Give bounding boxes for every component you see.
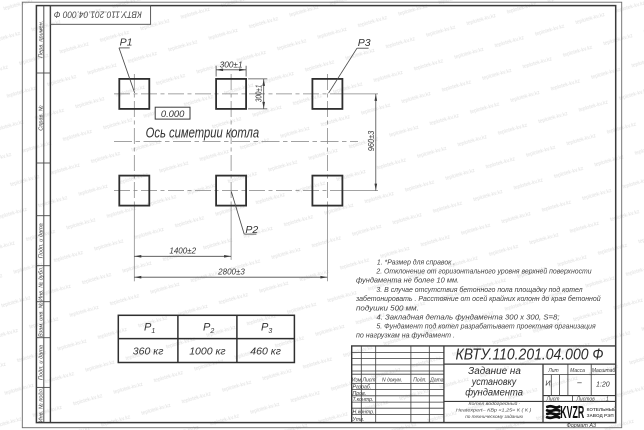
svg-text:Ось симетрии котла: Ось симетрии котла — [146, 125, 260, 142]
svg-text:Подп. и дата: Подп. и дата — [39, 223, 45, 258]
svg-text:1. *Размер для справок .: 1. *Размер для справок . — [377, 258, 455, 267]
svg-text:по техническому заданию: по техническому заданию — [465, 414, 523, 420]
svg-text:фундамента: фундамента — [465, 387, 523, 399]
svg-text:Heatexpert– КВр «1,25» К ( К ): Heatexpert– КВр «1,25» К ( К ) — [456, 408, 532, 414]
svg-text:Изм.Лист: Изм.Лист — [352, 377, 376, 383]
svg-text:2. Отклонение от горизонтальн: 2. Отклонение от горизонтального уровня … — [375, 267, 591, 276]
svg-text:фундамента не более 10 мм.: фундамента не более 10 мм. — [356, 276, 459, 285]
svg-text:забетонировать . Расстояние от: забетонировать . Расстояние от осей край… — [355, 294, 601, 303]
svg-text:Пров.: Пров. — [353, 391, 367, 397]
svg-text:ЗАВОД РЭП: ЗАВОД РЭП — [587, 413, 614, 418]
svg-text:Т.контр.: Т.контр. — [353, 397, 374, 403]
svg-text:KVZR: KVZR — [560, 402, 584, 422]
svg-text:1:20: 1:20 — [596, 381, 610, 388]
svg-text:Взам. инв. №: Взам. инв. № — [39, 302, 45, 337]
svg-text:Лит: Лит — [547, 368, 558, 374]
svg-text:Справ. №: Справ. № — [39, 105, 45, 130]
svg-text:Перв. примен.: Перв. примен. — [39, 21, 45, 58]
svg-text:Утв.: Утв. — [353, 417, 365, 423]
svg-text:1000 кг: 1000 кг — [189, 345, 225, 357]
svg-text:460 кг: 460 кг — [250, 345, 281, 357]
svg-text:960±3: 960±3 — [367, 130, 376, 151]
svg-text:Разраб.: Разраб. — [353, 385, 372, 391]
svg-text:Масса: Масса — [570, 368, 585, 374]
svg-text:КВТУ.110.201.04.000 Ф: КВТУ.110.201.04.000 Ф — [456, 347, 604, 364]
svg-text:360 кг: 360 кг — [133, 345, 164, 357]
svg-text:по нагрузкам на фундамент .: по нагрузкам на фундамент . — [356, 331, 455, 340]
svg-text:1: 1 — [606, 396, 609, 402]
svg-text:установку: установку — [471, 377, 517, 388]
svg-text:Инв. № дубл.: Инв. № дубл. — [39, 266, 45, 300]
svg-text:Задание на: Задание на — [468, 366, 521, 377]
svg-text:Подп.: Подп. — [413, 377, 426, 383]
svg-text:И: И — [545, 378, 551, 387]
svg-text:Котел водогрейный ·: Котел водогрейный · — [469, 400, 521, 407]
svg-text:2800±3: 2800±3 — [217, 267, 245, 276]
svg-text:Лист: Лист — [546, 396, 560, 402]
svg-text:3. В случае отсутствия бетонн: 3. В случае отсутствия бетонного пола пл… — [376, 285, 582, 294]
svg-text:P2: P2 — [245, 224, 258, 236]
svg-text:Масштаб: Масштаб — [592, 368, 616, 374]
svg-text:0.000: 0.000 — [161, 108, 185, 119]
svg-text:подушки 500 мм.: подушки 500 мм. — [356, 303, 419, 312]
svg-text:300±1: 300±1 — [255, 85, 264, 103]
svg-text:5. Фундамент под котел разраб: 5. Фундамент под котел разрабатывает про… — [376, 322, 595, 331]
svg-text:N докум.: N докум. — [382, 377, 402, 383]
svg-text:Подп. и дата: Подп. и дата — [39, 345, 45, 380]
svg-text:300±1: 300±1 — [220, 61, 243, 70]
svg-text:Инв. № подл.: Инв. № подл. — [39, 388, 45, 423]
svg-text:4. Закладная деталь фундамент: 4. Закладная деталь фундамента 300 x 300… — [376, 313, 559, 322]
svg-text:–: – — [576, 378, 582, 387]
svg-text:1400±2: 1400±2 — [169, 247, 196, 256]
svg-text:Формат А3: Формат А3 — [567, 423, 597, 429]
svg-text:Дата: Дата — [429, 377, 443, 383]
svg-text:P3: P3 — [358, 37, 371, 49]
svg-text:КОТЕЛЬНЫЙ: КОТЕЛЬНЫЙ — [587, 405, 617, 412]
svg-text:КВТУ.110.201.04.000 Ф: КВТУ.110.201.04.000 Ф — [54, 10, 142, 20]
svg-text:P1: P1 — [120, 37, 133, 49]
svg-text:Н.контр.: Н.контр. — [353, 409, 375, 415]
